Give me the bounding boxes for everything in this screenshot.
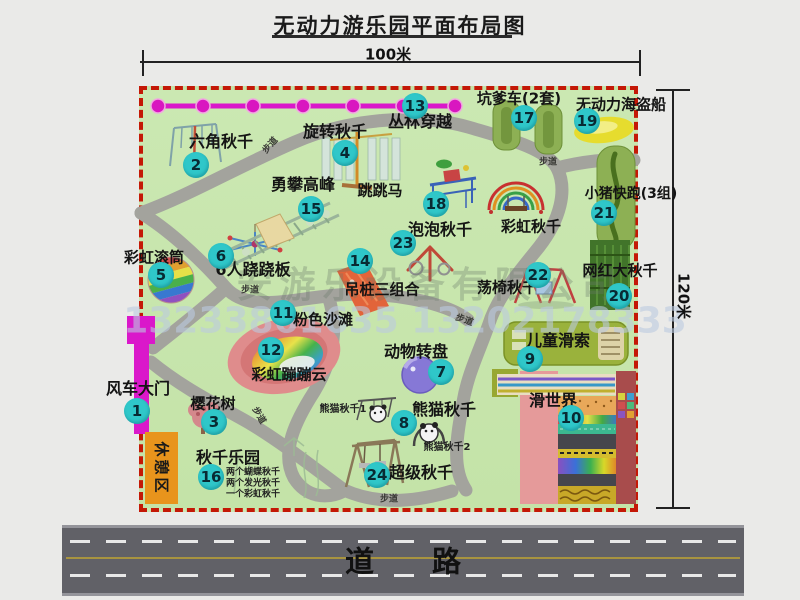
footpath-label-5: 步道 <box>380 496 398 505</box>
attraction-badge-7: 7 <box>428 359 454 385</box>
attraction-badge-10: 10 <box>558 405 584 431</box>
attraction-badge-16: 16 <box>198 464 224 490</box>
attraction-badge-4: 4 <box>332 140 358 166</box>
attraction-badge-13: 13 <box>402 93 428 119</box>
sub-label-2: 一个彩虹秋千 <box>226 491 280 500</box>
attraction-badge-3: 3 <box>201 409 227 435</box>
attraction-label-20: 网红大秋千 <box>582 264 657 279</box>
attraction-badge-23: 23 <box>390 230 416 256</box>
attraction-badge-20: 20 <box>606 283 632 309</box>
road: 道路 <box>62 525 744 596</box>
attraction-label-24: 超级秋千 <box>389 465 453 481</box>
title-underline <box>272 35 512 38</box>
attraction-badge-12: 12 <box>258 337 284 363</box>
attraction-badge-6: 6 <box>208 243 234 269</box>
attraction-badge-8: 8 <box>391 410 417 436</box>
attraction-label-18: 跳跳马 <box>357 184 402 199</box>
footpath-label-1: 步道 <box>539 159 557 168</box>
attraction-badge-19: 19 <box>574 108 600 134</box>
attraction-badge-18: 18 <box>423 191 449 217</box>
attraction-label-12: 彩虹蹦蹦云 <box>251 368 326 383</box>
dimension-width-label: 100米 <box>365 44 411 65</box>
attraction-badge-9: 9 <box>517 346 543 372</box>
watermark-phone: 13233861635 13202178333 <box>123 301 687 342</box>
attraction-label-彩虹秋千: 彩虹秋千 <box>501 220 561 235</box>
attraction-badge-24: 24 <box>364 462 390 488</box>
dimension-height-label: 120米 <box>674 273 695 319</box>
attraction-label-4: 旋转秋千 <box>303 124 367 140</box>
attraction-label-17: 坑爹车(2套) <box>477 92 561 107</box>
sub-label-1: 两个发光秋千 <box>226 480 280 489</box>
attraction-label-23: 泡泡秋千 <box>408 222 472 238</box>
attraction-badge-15: 15 <box>298 196 324 222</box>
attraction-label-8: 熊猫秋千 <box>412 402 476 418</box>
attraction-badge-1: 1 <box>124 398 150 424</box>
attraction-badge-14: 14 <box>347 248 373 274</box>
attraction-label-21: 小猪快跑(3组) <box>585 187 678 201</box>
attraction-label-1: 风车大门 <box>106 381 170 397</box>
sub-label-0: 两个蝴蝶秋千 <box>226 469 280 478</box>
attraction-label-15: 勇攀高峰 <box>271 177 335 193</box>
attraction-badge-11: 11 <box>270 300 296 326</box>
rest-area: 休憩区 <box>145 432 178 504</box>
attraction-badge-2: 2 <box>183 152 209 178</box>
road-label: 道路 <box>62 538 744 580</box>
rest-area-label: 休憩区 <box>151 441 172 495</box>
attraction-badge-21: 21 <box>591 200 617 226</box>
attraction-label-16: 秋千乐园 <box>196 450 260 466</box>
sub-label-4: 熊猫秋千2 <box>424 443 471 453</box>
playground-map-canvas: 无动力游乐园平面布局图 <box>0 0 800 600</box>
attraction-label-2: 六角秋千 <box>189 134 253 150</box>
attraction-label-14: 吊桩三组合 <box>344 283 419 298</box>
attraction-label-7: 动物转盘 <box>384 344 448 360</box>
attraction-badge-5: 5 <box>148 262 174 288</box>
attraction-badge-22: 22 <box>525 262 551 288</box>
attraction-label-11: 粉色沙滩 <box>293 313 353 328</box>
attraction-badge-17: 17 <box>511 105 537 131</box>
sub-label-3: 熊猫秋千1 <box>320 405 367 415</box>
footpath-label-2: 步道 <box>241 287 259 296</box>
